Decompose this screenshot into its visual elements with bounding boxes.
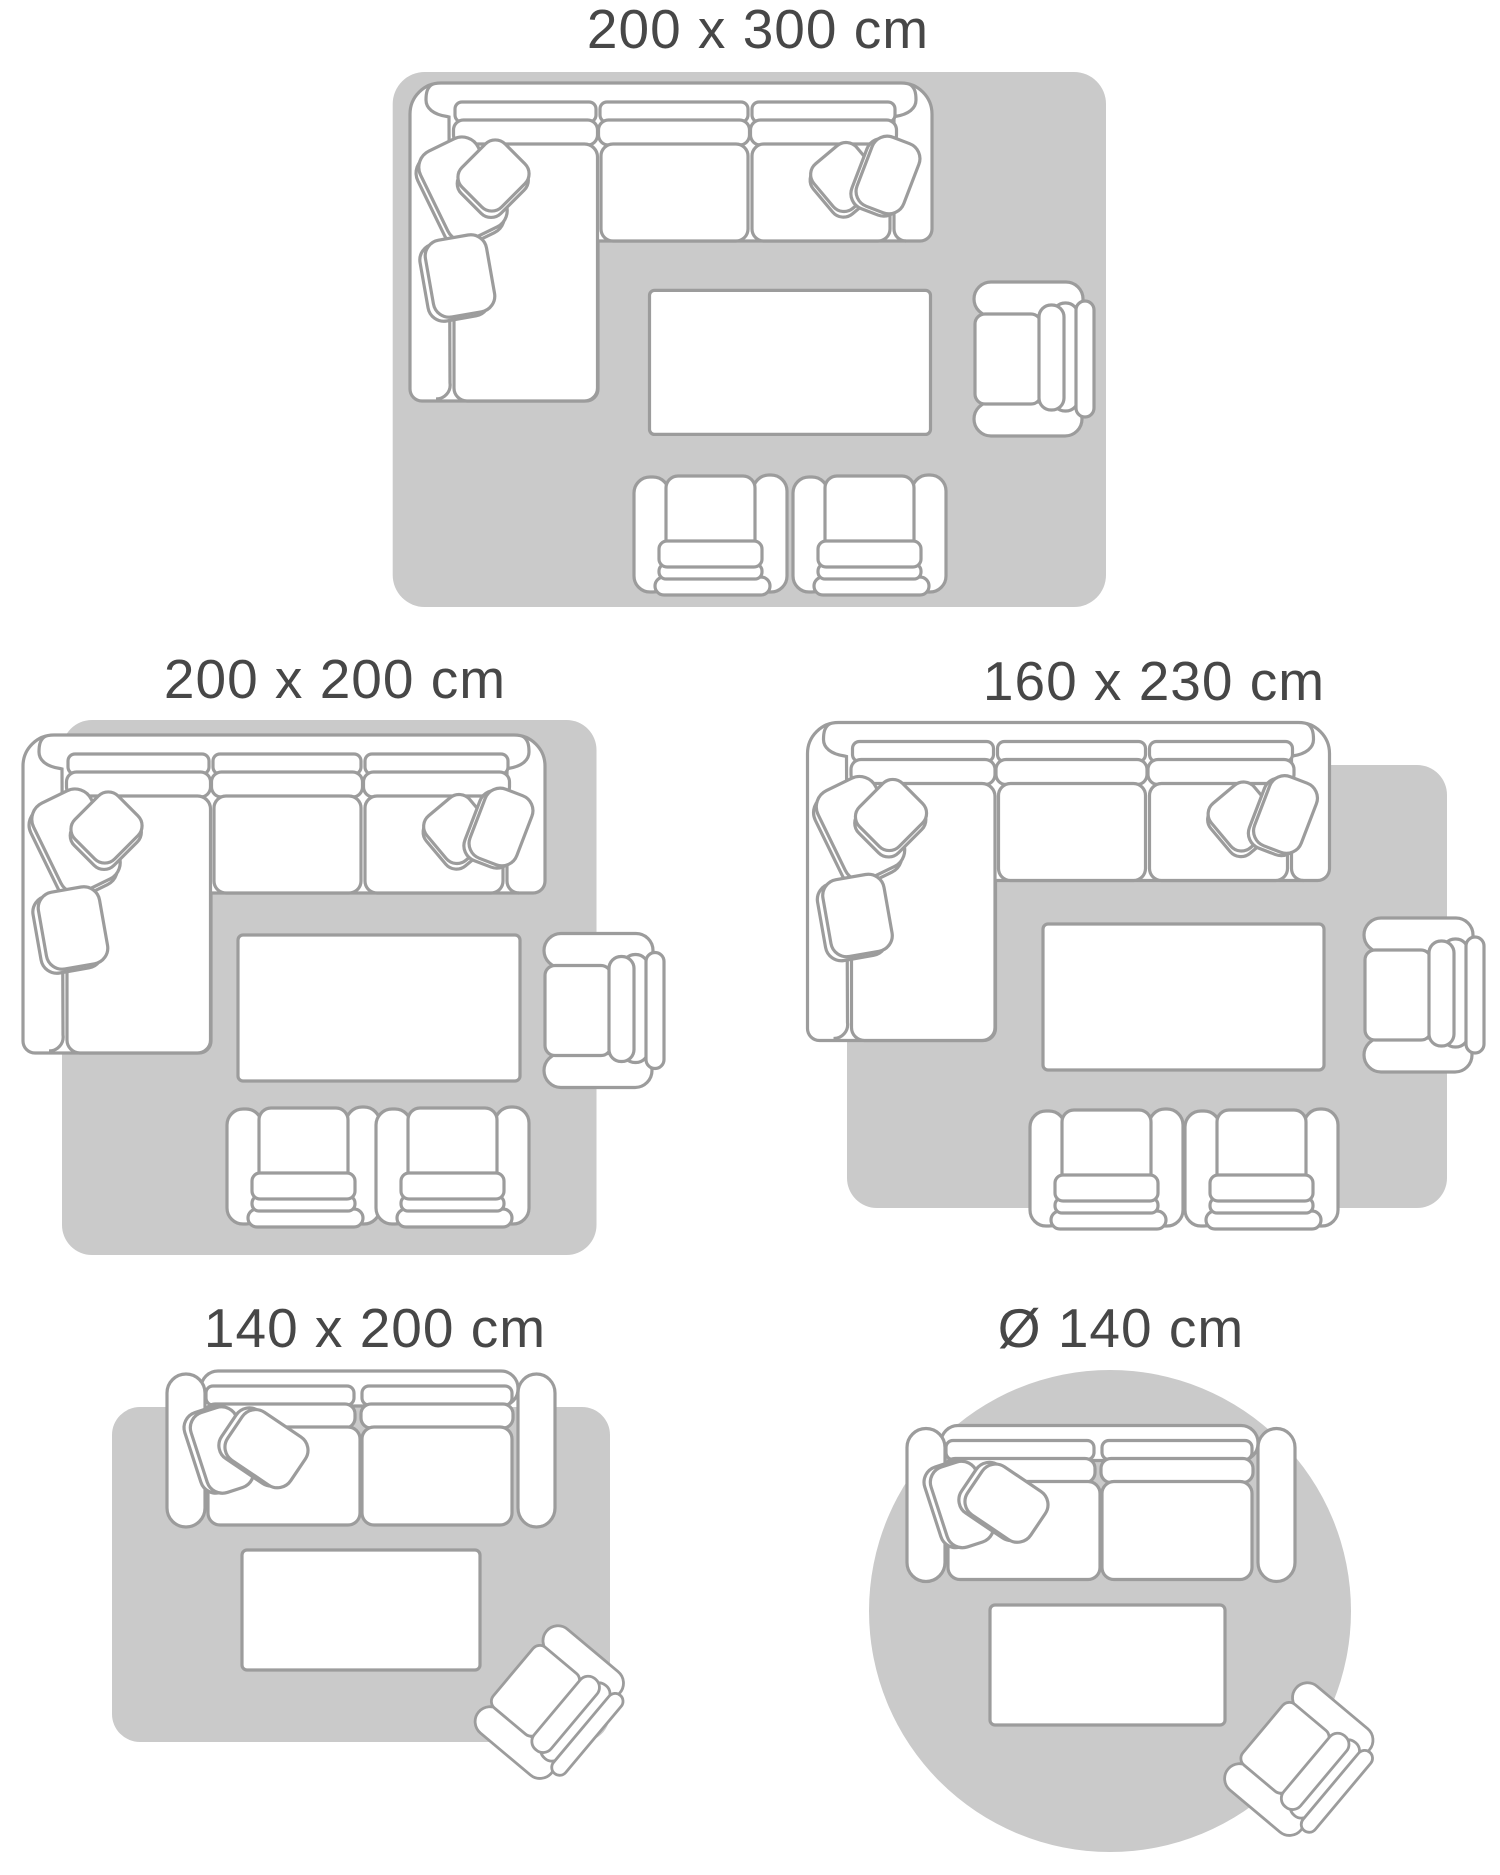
svg-text:200 x 300 cm: 200 x 300 cm xyxy=(587,0,929,60)
svg-text:Ø 140 cm: Ø 140 cm xyxy=(998,1297,1244,1359)
svg-text:140 x 200 cm: 140 x 200 cm xyxy=(204,1297,546,1359)
svg-text:200 x 200 cm: 200 x 200 cm xyxy=(164,648,506,710)
svg-text:160 x 230 cm: 160 x 230 cm xyxy=(983,650,1325,712)
